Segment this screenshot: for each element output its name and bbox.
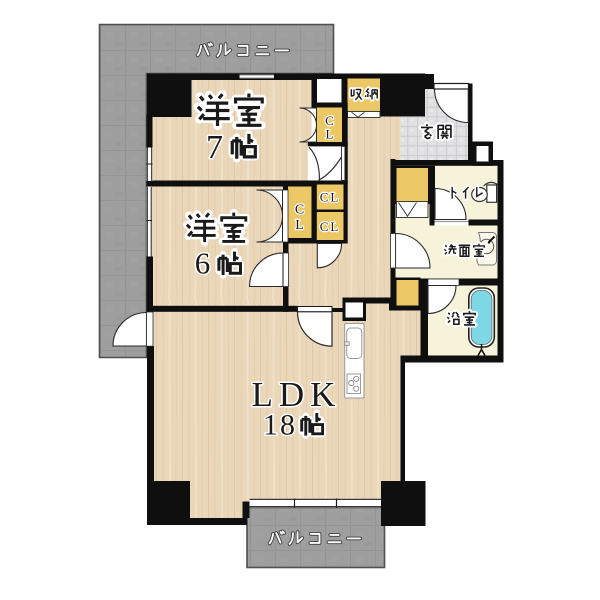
svg-text:C: C bbox=[295, 203, 304, 218]
svg-text:6: 6 bbox=[195, 246, 211, 281]
svg-text:7: 7 bbox=[206, 129, 223, 166]
svg-text:CL: CL bbox=[320, 219, 341, 234]
svg-text:L: L bbox=[326, 127, 334, 142]
svg-text:L: L bbox=[295, 218, 304, 233]
svg-text:CL: CL bbox=[320, 190, 341, 205]
svg-text:18: 18 bbox=[263, 409, 297, 442]
